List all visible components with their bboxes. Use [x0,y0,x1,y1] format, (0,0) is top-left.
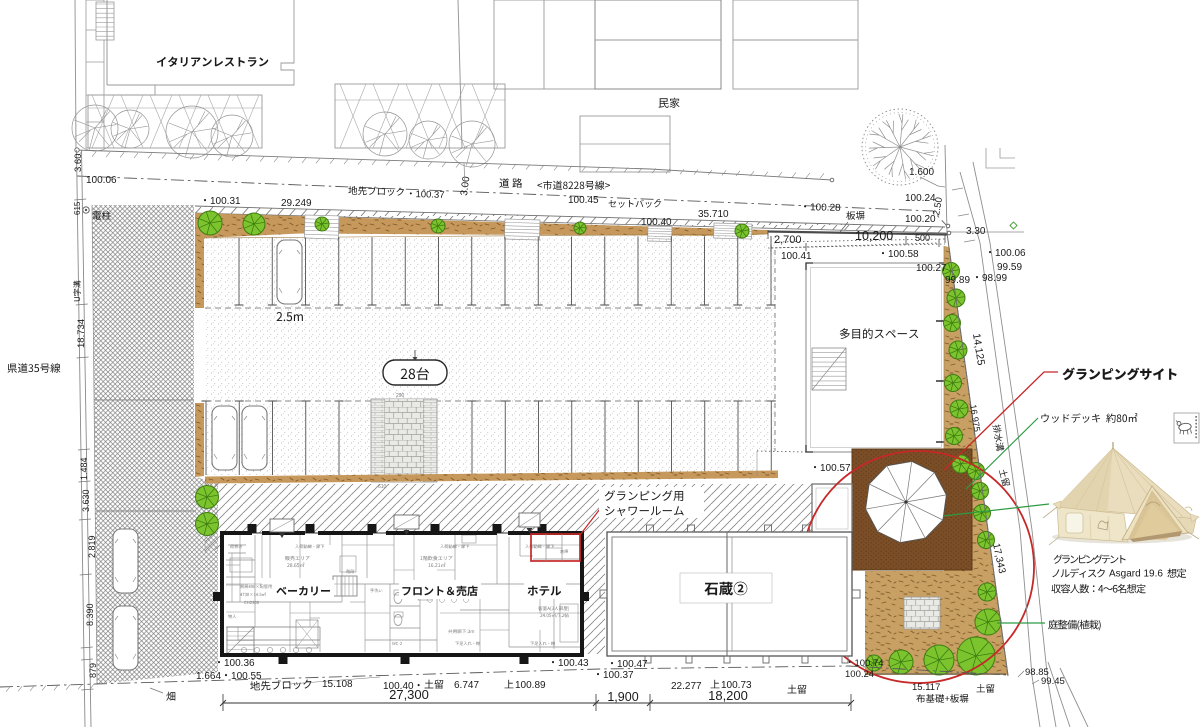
svg-text:100.24: 100.24 [905,193,936,204]
svg-text:99.89: 99.89 [945,275,970,286]
svg-text:35.710: 35.710 [698,209,729,220]
svg-text:Asgard 19.6: Asgard 19.6 [1109,569,1163,580]
svg-text:・100.57: ・100.57 [810,463,851,474]
svg-text:100.40: 100.40 [641,217,672,228]
svg-text:・100.31: ・100.31 [200,196,241,207]
svg-text:1,900: 1,900 [607,690,638,704]
svg-text:・100.43: ・100.43 [548,658,589,669]
svg-text:100.45: 100.45 [568,195,599,206]
svg-text:・100.06: ・100.06 [985,248,1026,259]
svg-text:8.390: 8.390 [85,603,95,626]
svg-text:1.600: 1.600 [909,167,934,178]
svg-text:1.484: 1.484 [79,457,89,480]
svg-text:・100.36: ・100.36 [214,658,255,669]
svg-text:・100.58: ・100.58 [878,249,919,260]
svg-text:615: 615 [73,201,82,215]
svg-text:99.59: 99.59 [997,262,1022,273]
svg-text:29.249: 29.249 [281,198,312,209]
svg-text:100.40・: 100.40・ [383,681,424,692]
svg-text:6.747: 6.747 [454,680,479,691]
svg-text:1.664・100.55: 1.664・100.55 [196,671,262,682]
svg-text:22.277: 22.277 [671,681,702,692]
svg-text:879: 879 [88,663,98,678]
svg-text:290: 290 [396,393,405,399]
svg-text:・100.47: ・100.47 [607,659,648,670]
svg-text:100.24: 100.24 [845,669,874,680]
svg-text:2.819: 2.819 [87,535,97,558]
svg-text:100.73: 100.73 [721,680,752,691]
svg-text:・98.99: ・98.99 [972,273,1007,284]
svg-text:・100.28: ・100.28 [800,202,841,214]
svg-text:100.41: 100.41 [781,251,812,262]
svg-text:100.06: 100.06 [86,175,117,186]
svg-text:3.630: 3.630 [81,489,91,512]
svg-text:15.108: 15.108 [322,679,353,690]
svg-text:15.117: 15.117 [912,682,940,693]
svg-text:2,700: 2,700 [774,234,802,246]
svg-text:99.45: 99.45 [1041,676,1065,687]
svg-text:100.27: 100.27 [916,263,947,274]
svg-text:500: 500 [915,233,930,243]
svg-text:3.60: 3.60 [73,154,84,173]
svg-text:100.89: 100.89 [515,680,546,691]
svg-text:・100.74: ・100.74 [845,658,884,669]
svg-text:10,200: 10,200 [855,229,893,243]
svg-text:・100.37: ・100.37 [593,670,634,681]
svg-text:18.734: 18.734 [76,319,87,348]
svg-text:・100.37: ・100.37 [406,189,445,201]
svg-text:3.30: 3.30 [966,226,986,237]
